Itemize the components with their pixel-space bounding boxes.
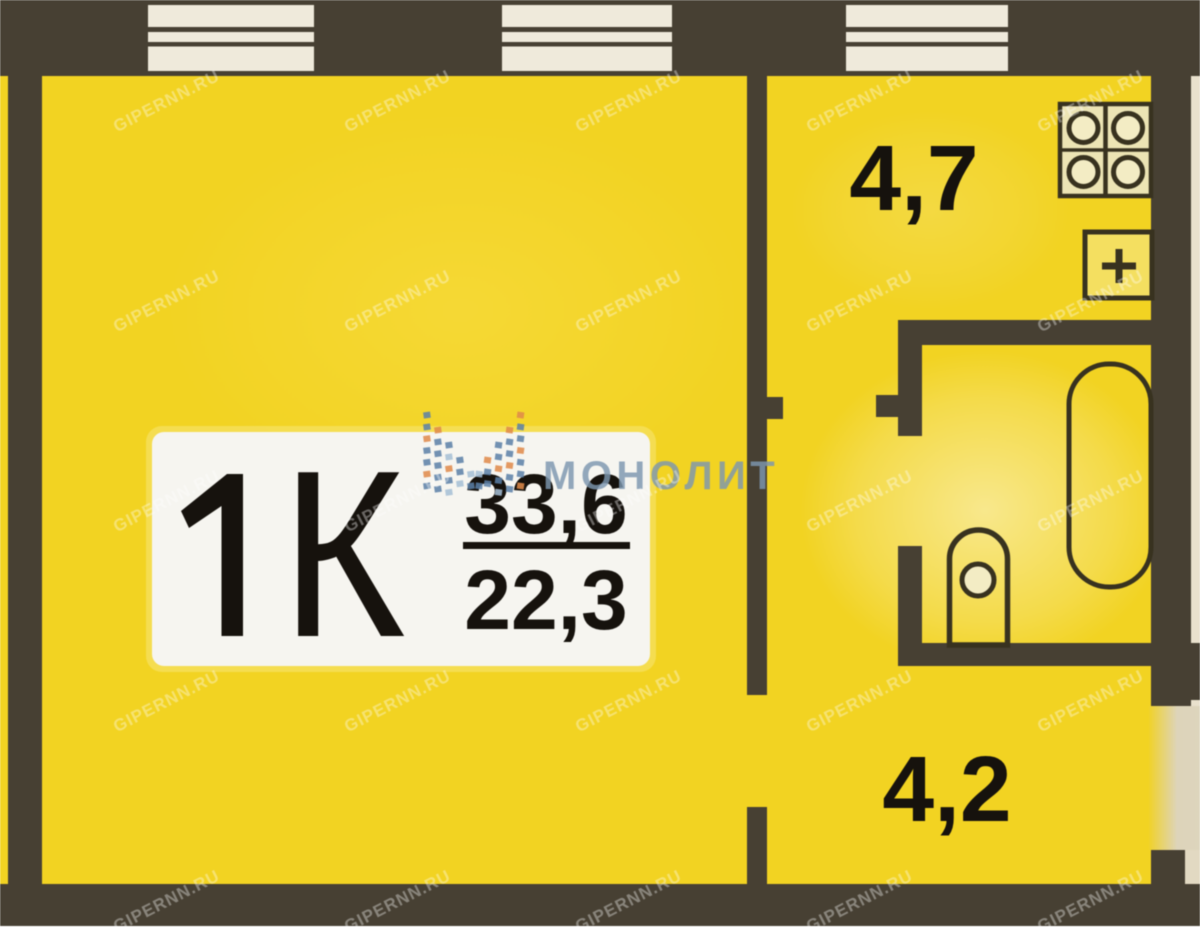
svg-text:4,2: 4,2 — [882, 737, 1011, 841]
svg-text:К: К — [281, 421, 406, 687]
svg-text:22,3: 22,3 — [464, 553, 628, 647]
svg-text:4,7: 4,7 — [849, 126, 978, 230]
